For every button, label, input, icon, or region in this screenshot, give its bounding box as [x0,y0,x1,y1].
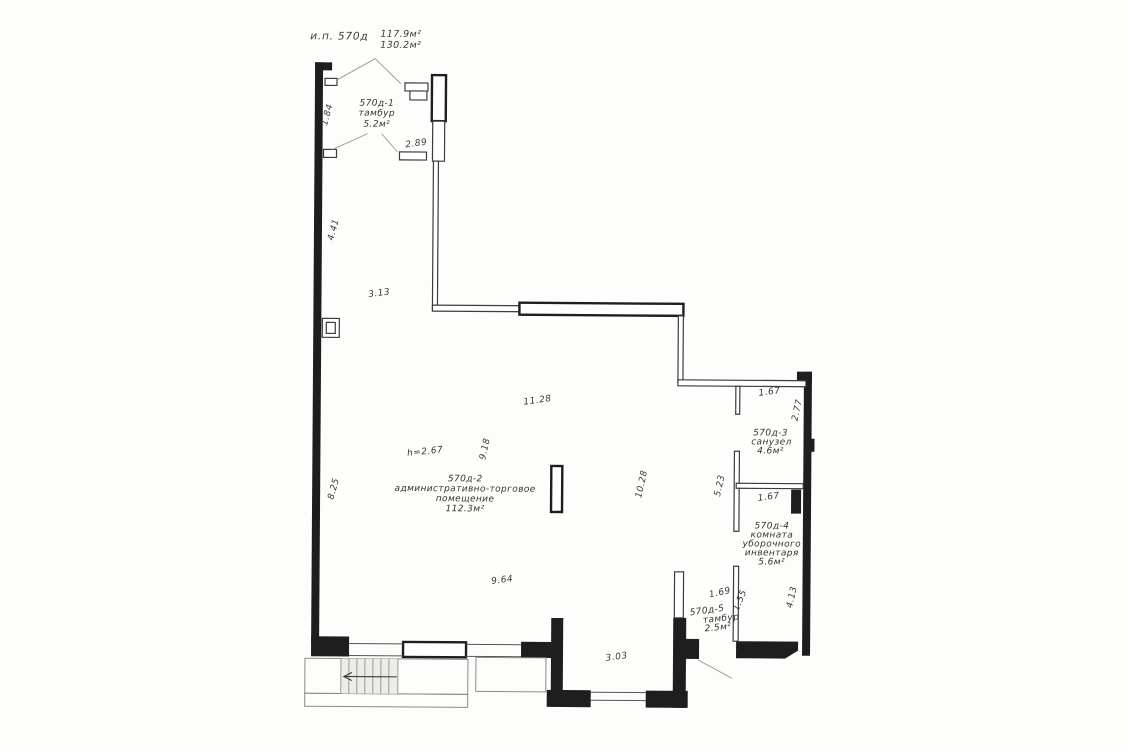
dim-entry-niche-width: 3.03 [605,651,628,664]
tambour5-leader-line [698,660,732,678]
porch-lower-step [305,693,468,707]
plan-header: и.п. 570д 117.9м² 130.2м² [310,28,421,51]
tambour5-west-wall [674,572,683,618]
dim-right-wall-lower: 4.13 [785,585,800,609]
door-jamb-bottom-left [323,149,336,157]
room-570d-2-label: 570д-2 административно-торговое помещени… [394,474,536,515]
door-leaf-symbol [410,91,427,100]
room-area: 5.2м² [363,120,390,130]
side-landing-outline [476,657,546,691]
dim-wc-width: 1.67 [758,386,781,399]
door-jamb-top-right [405,83,428,91]
door-jamb-bottom-right [399,152,426,160]
tambour-leader-line [333,133,368,149]
entry-niche-west-pier [547,618,592,707]
left-outer-wall [311,62,323,644]
right-wall-step [807,439,814,452]
dim-wc-depth: 2.77 [791,398,806,422]
room-area: 2.5м² [704,622,732,635]
room-name: тамбур [358,109,395,119]
total-area-1: 117.9м² [380,29,421,40]
room-area: 5.6м² [758,557,785,567]
scanned-floor-plan-page: и.п. 570д 117.9м² 130.2м² 570д-1 тамбур … [0,0,1125,750]
dim-main-width-bottom: 9.64 [491,574,514,587]
tambour-right-wall-lower [432,121,444,161]
unit-label: и.п. 570д [310,30,368,42]
room-area: 4.6м² [757,446,784,456]
room-id: 570д-1 [359,99,394,109]
dim-corridor-depth: 5.23 [713,474,728,498]
room-570d-3-label: 570д-3 санузел 4.6м² [751,428,792,456]
door-jamb-top-left [325,78,337,85]
wc-partition-stub [736,386,740,414]
room-id: 570д-2 [448,474,483,484]
dim-main-width-top: 11.28 [523,394,552,408]
tambour-window-block [432,75,446,121]
corridor-partition-upper [734,451,740,531]
right-outer-wall [802,372,812,656]
room-570d-1-label: 570д-1 тамбур 5.2м² [358,99,395,130]
total-area-2: 130.2м² [380,40,421,51]
wc-storage-partition [736,483,803,488]
entry-niche-south-wall [646,691,688,708]
dim-left-wall-lower: 8.25 [326,477,341,501]
room-name-line2: помещение [436,494,495,504]
dim-storage-width: 1.67 [757,491,780,504]
north-window-band [519,303,683,316]
room-name-line1: административно-торговое [395,484,536,495]
plan-group: и.п. 570д 117.9м² 130.2м² 570д-1 тамбур … [305,28,818,710]
room-area: 112.3м² [446,504,485,514]
tambour-leader-line [382,134,398,152]
right-wing-north-wall [678,380,806,387]
room-570d-4-label: 570д-4 комната уборочного инвентаря 5.6м… [741,521,801,567]
bottom-left-corner-wall [311,636,349,656]
bottom-wall-segment [521,642,552,658]
entry-niche-east-notch [685,639,699,659]
dim-main-depth-right: 10.28 [634,469,650,499]
east-wall-upper [432,161,438,309]
dim-tambour-width: 2.89 [405,138,428,151]
dim-left-wall-upper: 4.41 [326,218,341,242]
dim-upper-inner: 3.13 [368,287,391,300]
interior-column [551,466,562,512]
header-leader-line [336,58,401,83]
floor-plan-drawing: и.п. 570д 117.9м² 130.2м² 570д-1 тамбур … [0,0,1125,750]
right-wing-south-wall [736,641,798,658]
bottom-window-block [403,642,466,657]
east-wall-mid [678,316,683,382]
wall-duct-box-inner [326,322,335,333]
dim-main-depth-mid: 9.18 [478,437,493,461]
tambour-top-left-stub [315,62,332,70]
dim-ceiling-height: h=2.67 [407,445,444,458]
storage-door-jamb [791,490,801,514]
dim-tambour5-width: 1.69 [708,586,732,600]
north-wall-inner [432,305,522,312]
